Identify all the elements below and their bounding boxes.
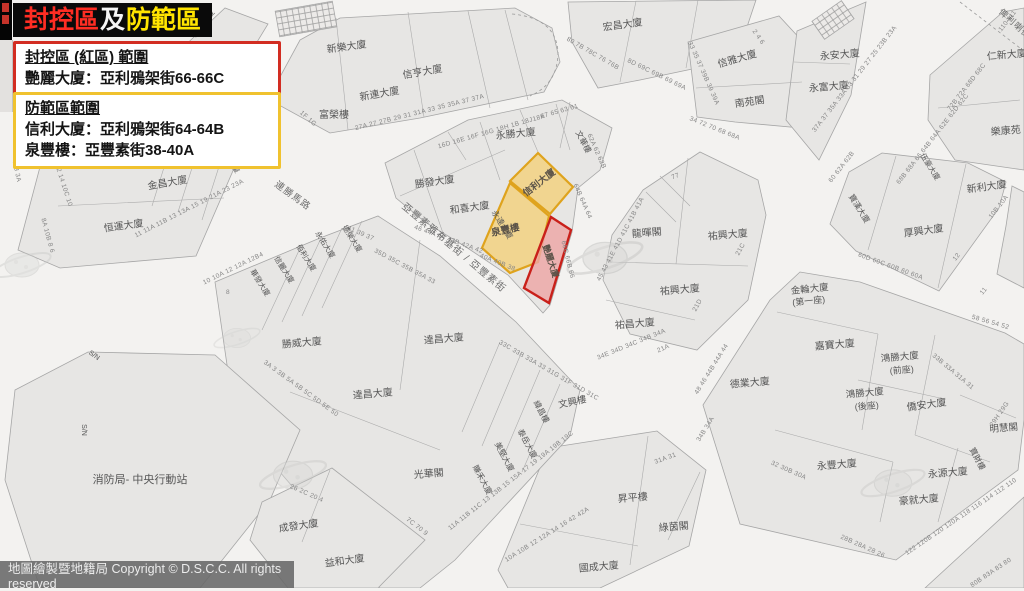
building-label: S/N — [80, 424, 87, 436]
page-title: 封控區 及 防範區 — [13, 3, 212, 37]
lockdown-map-page: { "title": { "segments": [ {"text": "封控區… — [0, 0, 1024, 588]
prevention-zone-legend: 防範區範圍 信利大廈：亞利鴉架街64-64B 泉豐樓：亞豐素街38-40A — [13, 92, 281, 169]
clipped-edge-strip-lower — [0, 40, 13, 112]
lockdown-zone-legend: 封控區 (紅區) 範圍 艷麗大廈：亞利鴉架街66-66C — [13, 41, 281, 97]
lot-number-label: 8 — [226, 289, 230, 296]
prevention-legend-line: 信利大廈：亞利鴉架街64-64B — [25, 119, 269, 140]
building-label: (後座) — [854, 399, 879, 412]
building-label: 消防局- 中央行動站 — [93, 472, 188, 486]
prevention-legend-heading: 防範區範圍 — [25, 98, 269, 119]
attribution-text: 地圖繪製暨地籍局 Copyright © D.S.C.C. All rights… — [8, 558, 286, 591]
lockdown-legend-line: 艷麗大廈：亞利鴉架街66-66C — [25, 68, 269, 89]
prevention-legend-line: 泉豐樓：亞豐素街38-40A — [25, 140, 269, 161]
lockdown-legend-heading: 封控區 (紅區) 範圍 — [25, 47, 269, 68]
clipped-edge-strip — [0, 0, 12, 40]
building-label: 明慧閣 — [989, 421, 1018, 435]
building-label: 富榮樓 — [319, 108, 349, 121]
title-segment-and: 及 — [100, 8, 125, 33]
title-segment-lockdown: 封控區 — [24, 8, 99, 33]
map-attribution: 地圖繪製暨地籍局 Copyright © D.S.C.C. All rights… — [0, 561, 294, 588]
title-segment-prevention: 防範區 — [126, 8, 201, 33]
building-label: (前座) — [889, 363, 914, 376]
